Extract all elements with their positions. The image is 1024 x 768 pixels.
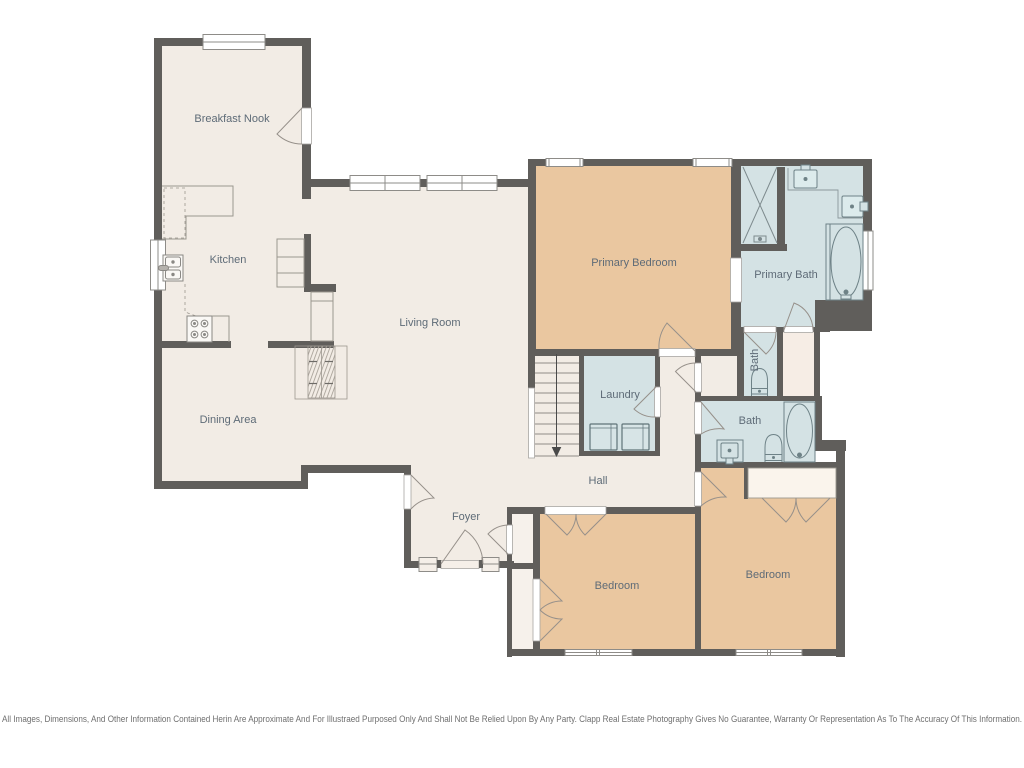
svg-text:Bedroom: Bedroom xyxy=(746,569,791,581)
svg-text:Bath: Bath xyxy=(749,349,761,372)
svg-text:Dining Area: Dining Area xyxy=(200,414,258,426)
svg-text:Living Room: Living Room xyxy=(399,317,460,329)
svg-text:Breakfast Nook: Breakfast Nook xyxy=(194,113,270,125)
svg-text:Laundry: Laundry xyxy=(600,389,640,401)
svg-text:Kitchen: Kitchen xyxy=(210,254,247,266)
svg-text:Bedroom: Bedroom xyxy=(595,580,640,592)
svg-text:Bath: Bath xyxy=(739,415,762,427)
svg-text:Primary Bath: Primary Bath xyxy=(754,269,818,281)
svg-text:Foyer: Foyer xyxy=(452,511,480,523)
svg-text:Primary Bedroom: Primary Bedroom xyxy=(591,257,677,269)
svg-text:Hall: Hall xyxy=(589,475,608,487)
svg-text:All Images, Dimensions, And Ot: All Images, Dimensions, And Other Inform… xyxy=(2,713,1022,724)
